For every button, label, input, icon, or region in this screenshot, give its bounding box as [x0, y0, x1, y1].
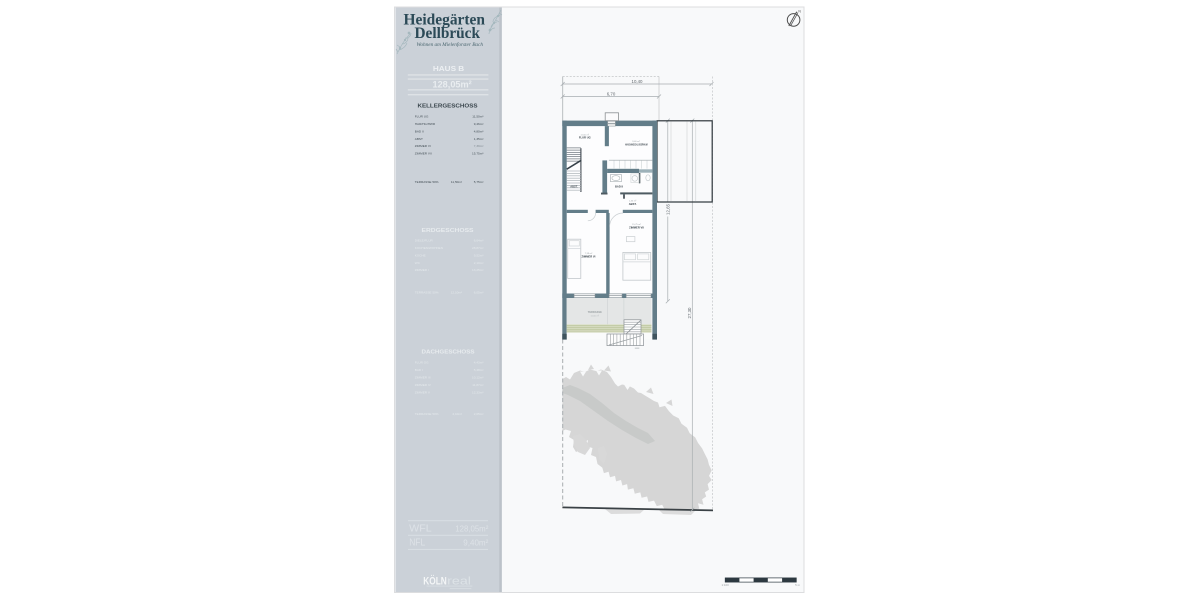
svg-text:11,87m²: 11,87m² — [472, 383, 483, 387]
svg-text:ABST.: ABST. — [570, 185, 578, 189]
svg-text:12,33m²: 12,33m² — [472, 390, 483, 394]
svg-text:ABST: ABST — [415, 137, 423, 141]
svg-text:9,52m²: 9,52m² — [474, 253, 484, 257]
svg-text:Wohnen am Mielenforster Bach: Wohnen am Mielenforster Bach — [417, 41, 484, 48]
svg-text:ZIMMER V: ZIMMER V — [415, 390, 431, 394]
svg-text:HAUSANSCHLUSSRAUM: HAUSANSCHLUSSRAUM — [625, 143, 648, 147]
svg-text:ZIMMER VI: ZIMMER VI — [582, 254, 596, 258]
svg-text:ZIMMER IV: ZIMMER IV — [415, 383, 432, 387]
svg-text:HAR/HG/HWR: HAR/HG/HWR — [415, 122, 436, 126]
svg-text:ZIMMER I: ZIMMER I — [415, 268, 429, 272]
svg-text:2,05m²: 2,05m² — [474, 412, 484, 416]
svg-text:15,75m²: 15,75m² — [472, 152, 483, 156]
svg-text:11,50 m²: 11,50 m² — [591, 314, 600, 317]
svg-text:BAD I: BAD I — [415, 368, 423, 372]
svg-text:1:100: 1:100 — [722, 583, 730, 587]
svg-text:4,43m²: 4,43m² — [474, 360, 484, 364]
svg-text:WFL: WFL — [409, 523, 432, 535]
svg-text:11,50m²: 11,50m² — [451, 180, 462, 184]
svg-text:2,10m²: 2,10m² — [474, 261, 484, 265]
svg-text:ZIMMER VII: ZIMMER VII — [415, 152, 432, 156]
svg-text:HAUS B: HAUS B — [433, 64, 465, 73]
svg-text:6,64m²: 6,64m² — [474, 239, 484, 243]
svg-text:6,70: 6,70 — [607, 91, 616, 96]
svg-text:DIELE/FLUR: DIELE/FLUR — [415, 239, 434, 243]
svg-text:12,10m²: 12,10m² — [451, 290, 462, 294]
svg-text:12,65: 12,65 — [666, 203, 671, 215]
svg-text:5,48m²: 5,48m² — [474, 368, 484, 372]
svg-text:FLUR OG: FLUR OG — [415, 360, 429, 364]
svg-text:BAD II: BAD II — [415, 129, 424, 133]
svg-text:ZIMMER VII: ZIMMER VII — [629, 225, 644, 229]
svg-text:9,40m²: 9,40m² — [463, 538, 488, 548]
svg-text:28,87m²: 28,87m² — [472, 246, 483, 250]
svg-text:NFL: NFL — [409, 537, 425, 549]
svg-text:ZIMMER III: ZIMMER III — [415, 375, 431, 379]
svg-text:TERRASSE 50%: TERRASSE 50% — [415, 290, 439, 294]
svg-text:10,12m²: 10,12m² — [472, 375, 483, 379]
svg-text:128,05m²: 128,05m² — [455, 524, 488, 534]
svg-text:13,25m²: 13,25m² — [472, 268, 483, 272]
svg-text:KOCHEN/WOHNEN: KOCHEN/WOHNEN — [415, 246, 443, 250]
svg-text:27,30: 27,30 — [687, 307, 692, 319]
svg-text:5,75m²: 5,75m² — [474, 180, 484, 184]
svg-text:4,10m²: 4,10m² — [452, 412, 462, 416]
svg-text:KÜCHE: KÜCHE — [415, 253, 426, 257]
svg-text:10,40: 10,40 — [632, 79, 644, 84]
svg-text:TERRASSE 50%: TERRASSE 50% — [415, 180, 439, 184]
svg-text:ABST.: ABST. — [629, 202, 637, 206]
svg-text:KELLERGESCHOSS: KELLERGESCHOSS — [418, 104, 479, 110]
svg-text:4,80m²: 4,80m² — [474, 129, 484, 133]
svg-text:Dellbrück: Dellbrück — [415, 25, 481, 42]
svg-text:128,05m²: 128,05m² — [433, 80, 472, 90]
svg-text:TERRASSE: TERRASSE — [588, 310, 602, 314]
svg-text:ZIMMER VI: ZIMMER VI — [415, 144, 431, 148]
svg-text:TERRASSE 50%: TERRASSE 50% — [415, 412, 439, 416]
svg-text:FLUR UG: FLUR UG — [579, 136, 591, 140]
svg-text:WC: WC — [415, 261, 421, 265]
svg-text:ERDGESCHOSS: ERDGESCHOSS — [422, 228, 475, 234]
svg-text:DACHGESCHOSS: DACHGESCHOSS — [422, 350, 476, 356]
svg-text:6,05m²: 6,05m² — [474, 290, 484, 294]
svg-text:7,39m²: 7,39m² — [474, 144, 484, 148]
svg-text:BAD II: BAD II — [615, 184, 623, 188]
svg-text:5 m: 5 m — [795, 583, 800, 587]
svg-text:FLUR UG: FLUR UG — [415, 115, 429, 119]
svg-text:9,46m²: 9,46m² — [474, 122, 484, 126]
svg-text:11,50m²: 11,50m² — [472, 115, 483, 119]
svg-text:1,35m²: 1,35m² — [474, 137, 484, 141]
